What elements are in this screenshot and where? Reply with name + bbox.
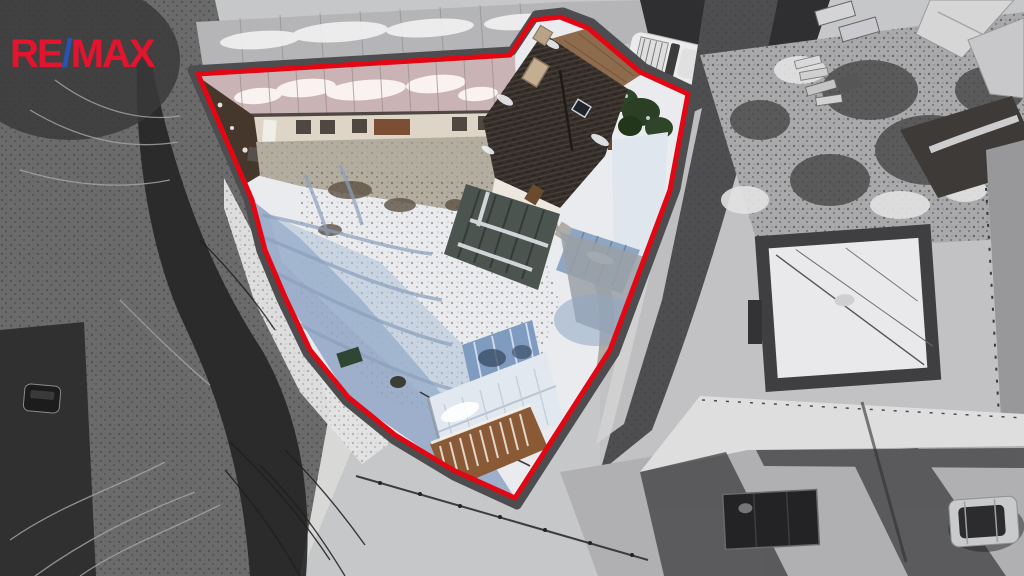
parked-car-dark xyxy=(23,383,61,413)
logo-slash: / xyxy=(62,32,71,76)
aerial-photo-canvas xyxy=(0,0,1024,576)
left-road xyxy=(0,322,96,576)
storage-wood-unit xyxy=(374,119,410,135)
logo-text-re: RE xyxy=(10,32,62,76)
remax-logo: RE/MAX xyxy=(10,34,154,74)
building-annex xyxy=(748,300,762,344)
flat-roof-building xyxy=(755,224,941,392)
aerial-property-photo: RE/MAX xyxy=(0,0,1024,576)
container-trailer xyxy=(723,490,820,550)
logo-text-max: MAX xyxy=(71,32,154,76)
